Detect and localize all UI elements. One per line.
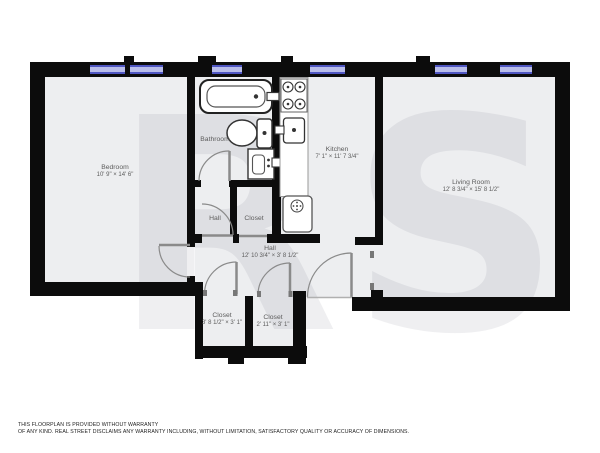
- wall-kitchen-east: [375, 77, 383, 245]
- closet-bottom-left-name: Closet: [202, 312, 242, 320]
- wall-left: [30, 62, 45, 296]
- closet-bottom-left-dims: 3' 8 1/2" × 3' 1": [202, 320, 242, 327]
- bathroom-name: Bathroom: [200, 136, 229, 144]
- closet-bottom-right-label: Closet 2' 11" × 3' 1": [257, 314, 290, 329]
- wall-hallsmall-closet: [230, 187, 237, 235]
- bathroom-label: Bathroom: [200, 136, 229, 144]
- hall-main-label: Hall 12' 10 3/4" × 3' 8 1/2": [242, 245, 299, 260]
- hall-small-name: Hall: [209, 215, 221, 223]
- wall-bedroom-east-lower: [187, 276, 195, 284]
- living-room-label: Living Room 12' 8 3/4" × 15' 8 1/2": [443, 179, 500, 194]
- wall-closet-divider: [245, 296, 253, 346]
- wall-bump-top-2: [198, 56, 216, 63]
- wall-hall-north-c: [267, 234, 320, 243]
- wall-hall-north-b: [233, 234, 239, 243]
- closet-bottom-right-name: Closet: [257, 314, 290, 322]
- wall-bathroom-south-left: [195, 180, 201, 187]
- window-bedroom-2: [130, 65, 163, 74]
- wall-right: [555, 62, 570, 311]
- closet-upper-label: Closet: [244, 215, 263, 223]
- wall-bathroom-south-right: [229, 180, 280, 187]
- wall-bedroom-east-upper: [187, 77, 195, 247]
- hall-main-name: Hall: [242, 245, 299, 253]
- bedroom-label: Bedroom 10' 9" × 14' 6": [97, 164, 134, 179]
- kitchen-label: Kitchen 7' 1" × 11' 7 3/4": [316, 146, 359, 161]
- living-room-dims: 12' 8 3/4" × 15' 8 1/2": [443, 187, 500, 194]
- disclaimer-line-1: THIS FLOORPLAN IS PROVIDED WITHOUT WARRA…: [18, 422, 158, 428]
- closet-upper-name: Closet: [244, 215, 263, 223]
- window-kitchen: [310, 65, 345, 74]
- watermark-text: RS: [112, 80, 572, 375]
- disclaimer-line-2: OF ANY KIND. REAL STREET DISCLAIMS ANY W…: [18, 429, 409, 435]
- wall-hall-north-a: [195, 234, 202, 243]
- floorplan-canvas: RS: [0, 0, 600, 453]
- kitchen-name: Kitchen: [316, 146, 359, 154]
- hall-main-dims: 12' 10 3/4" × 3' 8 1/2": [242, 253, 299, 260]
- wall-bedroom-bottom: [30, 282, 195, 296]
- wall-bump-top-4: [416, 56, 430, 63]
- window-living-2: [500, 65, 532, 74]
- window-bathroom: [212, 65, 242, 74]
- kitchen-dims: 7' 1" × 11' 7 3/4": [316, 154, 359, 161]
- window-bedroom-1: [90, 65, 125, 74]
- wall-living-bottom: [352, 297, 570, 311]
- window-living-1: [435, 65, 467, 74]
- hall-small-label: Hall: [209, 215, 221, 223]
- bedroom-dims: 10' 9" × 14' 6": [97, 172, 134, 179]
- bedroom-name: Bedroom: [97, 164, 134, 172]
- wall-bump-top-1: [124, 56, 134, 63]
- wall-bump-top-3: [281, 56, 293, 63]
- closet-bottom-right-dims: 2' 11" × 3' 1": [257, 322, 290, 329]
- wall-bump-bottom-1: [228, 357, 244, 364]
- closet-bottom-left-label: Closet 3' 8 1/2" × 3' 1": [202, 312, 242, 327]
- living-room-name: Living Room: [443, 179, 500, 187]
- wall-entry-stub: [371, 290, 383, 298]
- wall-bathroom-kitchen: [272, 77, 281, 243]
- wall-closetblock-right: [293, 291, 306, 358]
- wall-bump-bottom-2: [288, 357, 306, 364]
